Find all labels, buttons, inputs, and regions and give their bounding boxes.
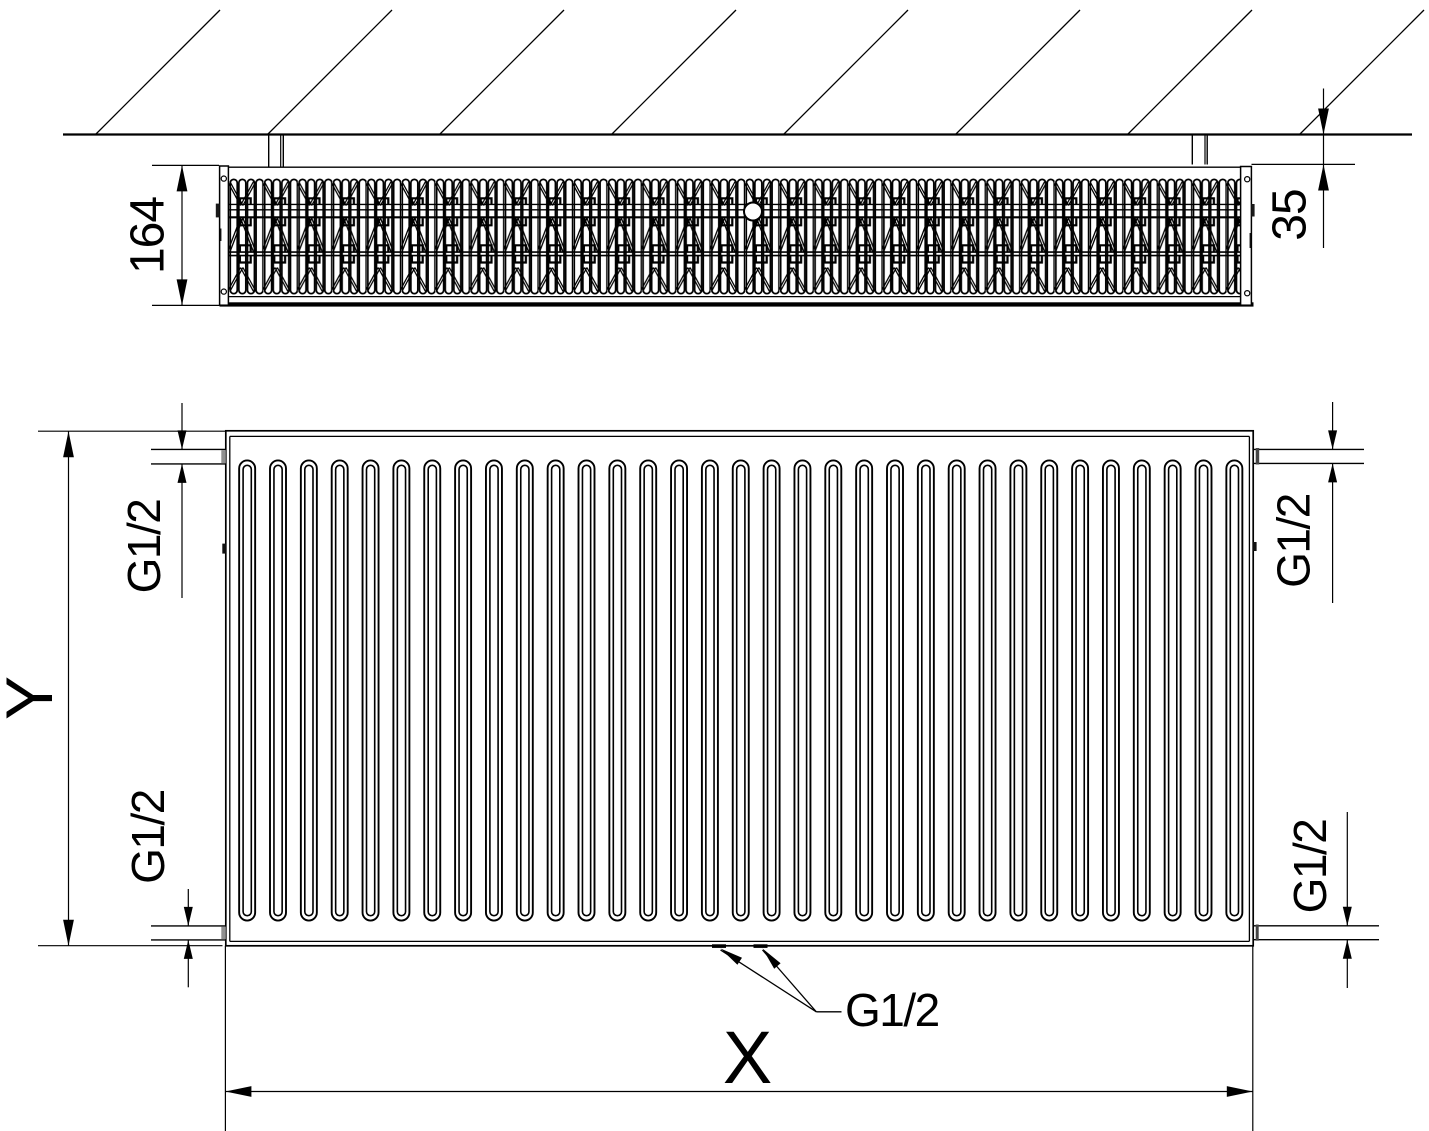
svg-text:G1/2: G1/2 xyxy=(1268,494,1320,588)
svg-text:G1/2: G1/2 xyxy=(118,500,170,594)
svg-text:Y: Y xyxy=(0,676,66,720)
svg-text:X: X xyxy=(723,1016,772,1099)
svg-text:35: 35 xyxy=(1264,189,1317,240)
svg-text:164: 164 xyxy=(122,197,175,274)
svg-text:G1/2: G1/2 xyxy=(122,790,174,884)
svg-text:G1/2: G1/2 xyxy=(845,984,939,1036)
svg-text:G1/2: G1/2 xyxy=(1284,820,1336,914)
